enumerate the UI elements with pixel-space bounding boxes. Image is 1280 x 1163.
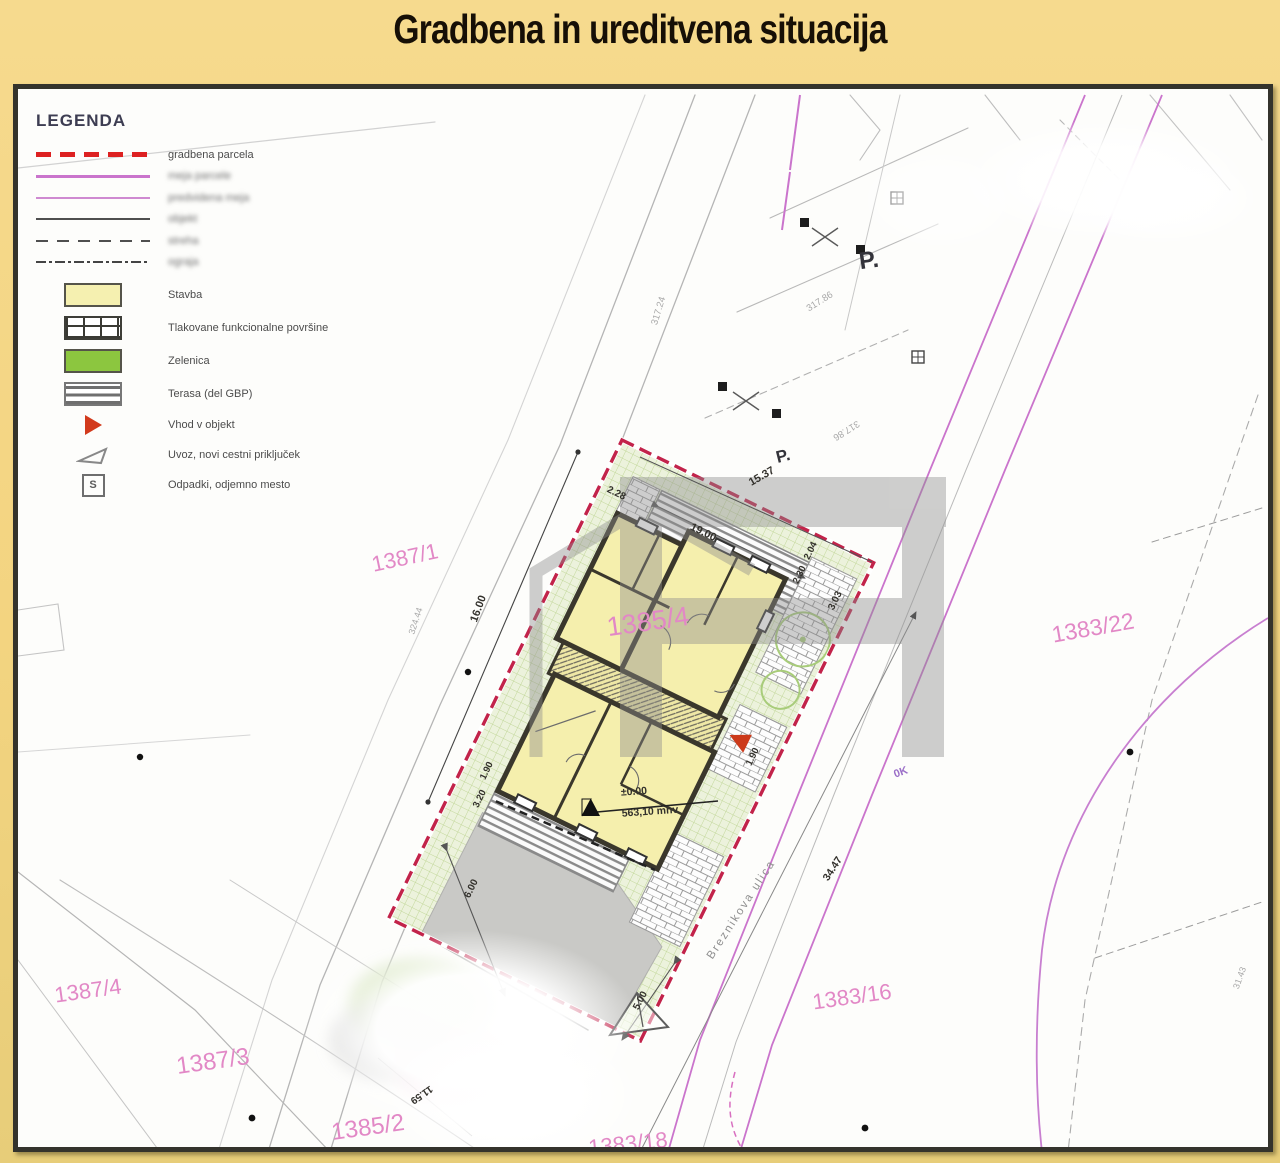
legend-item-gradbena-parcela: gradbena parcela (36, 144, 386, 166)
legend-item-terasa: Terasa (del GBP) (36, 377, 386, 410)
black-dashed-line-swatch (36, 240, 150, 242)
legend-label: meja parcele (168, 170, 231, 182)
magenta-line-swatch (36, 197, 150, 200)
black-dashdot-line-swatch (36, 261, 150, 263)
legend-label: Uvoz, novi cestni priključek (168, 449, 300, 461)
legend-item-meja: meja parcele (36, 166, 386, 188)
outline-triangle-icon (64, 444, 122, 466)
green-fill-swatch (64, 349, 122, 373)
legend-label: streha (168, 235, 199, 247)
legend-item-uvoz: Uvoz, novi cestni priključek (36, 439, 386, 470)
legend-item-predvidena-meja: predvidena meja (36, 187, 386, 209)
legend-label: Tlakovane funkcionalne površine (168, 322, 328, 334)
legend-label: Vhod v objekt (168, 419, 235, 431)
legend: LEGENDA gradbena parcela meja parcele pr… (36, 111, 386, 500)
yellow-fill-swatch (64, 283, 122, 307)
legend-item-odpadki: S Odpadki, odjemno mesto (36, 470, 386, 500)
legend-label: Terasa (del GBP) (168, 388, 252, 400)
legend-label: Odpadki, odjemno mesto (168, 479, 290, 491)
page-title: Gradbena in ureditvena situacija (115, 6, 1165, 53)
legend-label: gradbena parcela (168, 149, 254, 161)
legend-item-streha: streha (36, 230, 386, 252)
gate-markers (718, 218, 865, 418)
legend-label: ograja (168, 256, 199, 268)
red-triangle-icon (85, 415, 102, 435)
legend-label: predvidena meja (168, 192, 249, 204)
site-plan-panel: 1387/11385/41383/221387/41387/31385/2138… (13, 84, 1273, 1152)
legend-item-vhod: Vhod v objekt (36, 410, 386, 439)
legend-item-ograja: ograja (36, 252, 386, 274)
waste-square-icon: S (82, 474, 105, 497)
magenta-line-swatch (36, 175, 150, 178)
brick-pattern-swatch (64, 316, 122, 340)
waste-square-glyph: S (89, 479, 96, 491)
utility-symbols (891, 192, 924, 363)
stripe-pattern-swatch (64, 382, 122, 406)
legend-label: objekt (168, 213, 197, 225)
legend-item-tlakovane: Tlakovane funkcionalne površine (36, 311, 386, 344)
legend-item-stavba: Stavba (36, 278, 386, 311)
legend-label: Zelenica (168, 355, 210, 367)
legend-label: Stavba (168, 289, 202, 301)
legend-heading: LEGENDA (36, 111, 386, 131)
black-line-swatch (36, 218, 150, 220)
legend-item-zelenica: Zelenica (36, 344, 386, 377)
red-dashed-line-swatch (36, 152, 150, 157)
legend-item-objekt: objekt (36, 209, 386, 231)
